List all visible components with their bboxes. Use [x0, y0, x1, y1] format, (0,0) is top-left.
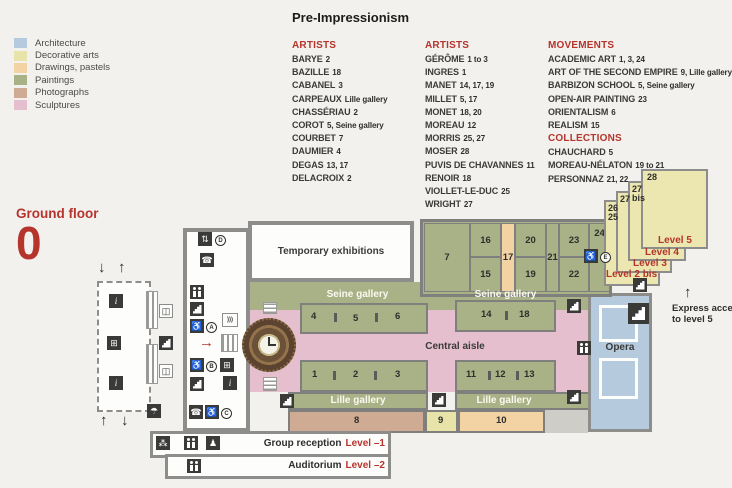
legend-item: Paintings: [14, 74, 110, 86]
toilets-icon: [187, 459, 201, 473]
list-entry: COURBET7: [292, 132, 387, 145]
up-arrow-icon: ↑: [684, 284, 692, 301]
list-entry: WRIGHT27: [425, 198, 535, 211]
room-27: 27: [620, 195, 630, 204]
opera-label: Opera: [596, 342, 644, 353]
room-17: 17: [501, 223, 515, 292]
movements-column: MOVEMENTS ACADEMIC ART1, 3, 24ART OF THE…: [548, 40, 732, 186]
stairs-icon: [567, 299, 581, 313]
staircase-hatch: [146, 291, 158, 329]
wall-stub: [333, 371, 336, 380]
artists-heading: ARTISTS: [292, 40, 387, 51]
letter-d-badge: D: [215, 235, 226, 246]
artists-column-1: ARTISTS BARYE2BAZILLE18CABANEL3CARPEAUXL…: [292, 40, 387, 185]
stairs-icon: [280, 394, 294, 408]
list-entry: DELACROIX2: [292, 172, 387, 185]
room-6: 6: [395, 311, 400, 322]
wall-stub: [334, 313, 337, 322]
bookshop-icon: ◫: [159, 304, 173, 318]
artists-heading: ARTISTS: [425, 40, 535, 51]
room-19: 19: [515, 257, 546, 292]
toilets-icon: [577, 341, 591, 355]
list-entry: MOSER28: [425, 145, 535, 158]
list-entry: GÉRÔME1 to 3: [425, 53, 535, 66]
legend-label: Drawings, pastels: [35, 62, 110, 73]
legend-item: Architecture: [14, 37, 110, 49]
room-15: 15: [470, 257, 501, 292]
museum-floorplan-page: Architecture Decorative arts Drawings, p…: [0, 0, 732, 488]
bookshop-icon: ◫: [159, 364, 173, 378]
group-icon: ⁂: [156, 436, 170, 450]
room-14: 14: [481, 309, 492, 320]
toilets-icon: [190, 285, 204, 299]
central-aisle-label: Central aisle: [410, 341, 500, 352]
stairs-icon: [190, 377, 204, 391]
stairs-icon: [567, 390, 581, 404]
legend-swatch: [14, 100, 27, 110]
service-area: [545, 406, 588, 433]
info-icon: i: [223, 376, 237, 390]
room-1: 1: [312, 369, 317, 380]
audioguide-icon: ))): [222, 313, 238, 327]
tickets-icon: ⊞: [107, 336, 121, 350]
room-16: 16: [470, 223, 501, 257]
list-entry: BAZILLE18: [292, 66, 387, 79]
phone-icon: ☎: [189, 405, 203, 419]
list-entry: CARPEAUXLille gallery: [292, 93, 387, 106]
legend-swatch: [14, 51, 27, 61]
list-entry: COROT5, Seine gallery: [292, 119, 387, 132]
room-25: 25: [608, 213, 618, 222]
wall-stub: [374, 371, 377, 380]
room-18: 18: [519, 309, 530, 320]
staircase-hatch: [263, 377, 277, 391]
staircase-hatch: [221, 334, 238, 352]
room-11: 11: [466, 369, 476, 380]
legend-label: Decorative arts: [35, 50, 99, 61]
page-title: Pre-Impressionism: [292, 10, 409, 25]
up-arrow-icon: ↑: [118, 259, 126, 276]
escalator-icon: [628, 303, 649, 324]
rooms-4-6-block: [300, 303, 428, 334]
legend-item: Decorative arts: [14, 49, 110, 61]
legend-label: Sculptures: [35, 100, 80, 111]
room-8: 8: [354, 415, 359, 426]
info-icon: i: [109, 294, 123, 308]
express-access-label: Express access: [672, 303, 732, 314]
level-2bis-label: Level 2 bis: [606, 269, 657, 280]
legend-item: Photographs: [14, 87, 110, 99]
list-entry: INGRES1: [425, 66, 535, 79]
legend-swatch: [14, 38, 27, 48]
wheelchair-icon: ♿: [190, 319, 204, 333]
rooms-1-3-block: [300, 360, 428, 392]
list-entry: MANET14, 17, 19: [425, 79, 535, 92]
elevator-icon: ⇅: [198, 232, 212, 246]
letter-c-badge: C: [221, 408, 232, 419]
temporary-exhibitions-label: Temporary exhibitions: [278, 246, 385, 257]
legend-swatch: [14, 75, 27, 85]
wall-stub: [516, 371, 519, 380]
artists-list-2: GÉRÔME1 to 3INGRES1MANET14, 17, 19MILLET…: [425, 53, 535, 211]
legend-label: Photographs: [35, 87, 89, 98]
list-entry: ORIENTALISM6: [548, 106, 732, 119]
group-reception-label: Group receptionLevel –1: [200, 438, 385, 449]
room-3: 3: [395, 369, 400, 380]
seine-gallery-label-left: Seine gallery: [320, 289, 395, 300]
legend-item: Sculptures: [14, 99, 110, 111]
room-27bis: 27 bis: [632, 185, 646, 203]
stairs-icon: [432, 393, 446, 407]
up-arrow-icon: ↑: [100, 412, 108, 429]
list-entry: MILLET5, 17: [425, 93, 535, 106]
group-reception-text: Group reception: [264, 438, 342, 449]
movements-list: ACADEMIC ART1, 3, 24ART OF THE SECOND EM…: [548, 53, 732, 132]
stairs-icon: [633, 278, 647, 292]
list-entry: MONET18, 20: [425, 106, 535, 119]
legend-item: Drawings, pastels: [14, 62, 110, 74]
legend-swatch: [14, 88, 27, 98]
list-entry: VIOLLET-LE-DUC25: [425, 185, 535, 198]
movements-heading: MOVEMENTS: [548, 40, 732, 51]
letter-e-badge: E: [600, 252, 611, 263]
floor-number: 0: [16, 220, 42, 266]
room-21: 21: [546, 223, 559, 292]
level-3-label: Level 3: [633, 258, 667, 269]
clock-medallion: [242, 318, 296, 372]
list-entry: PUVIS DE CHAVANNES11: [425, 159, 535, 172]
seine-gallery-label-right: Seine gallery: [468, 289, 543, 300]
list-entry: CHAUCHARD5: [548, 146, 732, 159]
entrance-wing: [97, 281, 151, 412]
entrance-direction-arrow: →: [199, 334, 214, 351]
list-entry: ACADEMIC ART1, 3, 24: [548, 53, 732, 66]
collections-heading: COLLECTIONS: [548, 133, 732, 144]
room-13: 13: [524, 369, 535, 380]
room-2: 2: [353, 369, 358, 380]
wheelchair-icon: ♿: [584, 249, 598, 263]
lille-gallery-label-left: Lille gallery: [322, 395, 394, 406]
room-28: 28: [647, 173, 657, 182]
list-entry: OPEN-AIR PAINTING23: [548, 93, 732, 106]
wall-stub: [505, 311, 508, 320]
room-12: 12: [495, 369, 506, 380]
stairs-icon: [190, 302, 204, 316]
level-4-label: Level 4: [645, 247, 679, 258]
room-5: 5: [353, 313, 358, 324]
lille-gallery-label-right: Lille gallery: [468, 395, 540, 406]
list-entry: ART OF THE SECOND EMPIRE9, Lille gallery: [548, 66, 732, 79]
list-entry: REALISM15: [548, 119, 732, 132]
auditorium-level: Level –2: [346, 460, 385, 471]
legend-swatch: [14, 63, 27, 73]
wheelchair-icon: ♿: [205, 405, 219, 419]
room-10: 10: [496, 415, 507, 426]
list-entry: MOREAU12: [425, 119, 535, 132]
toilets-icon: [184, 436, 198, 450]
staircase-hatch: [263, 302, 277, 314]
baby-care-icon: ♟: [206, 436, 220, 450]
legend: Architecture Decorative arts Drawings, p…: [14, 37, 110, 111]
artists-column-2: ARTISTS GÉRÔME1 to 3INGRES1MANET14, 17, …: [425, 40, 535, 211]
room-20: 20: [515, 223, 546, 257]
list-entry: DEGAS13, 17: [292, 159, 387, 172]
letter-a-badge: A: [206, 322, 217, 333]
list-entry: MORRIS25, 27: [425, 132, 535, 145]
list-entry: CABANEL3: [292, 79, 387, 92]
down-arrow-icon: ↓: [121, 412, 129, 429]
legend-label: Architecture: [35, 38, 86, 49]
auditorium-text: Auditorium: [288, 460, 341, 471]
opera-room-outline: [599, 358, 638, 399]
list-entry: BARYE2: [292, 53, 387, 66]
level-5-label: Level 5: [658, 235, 692, 246]
group-reception-level: Level –1: [346, 438, 385, 449]
info-icon: i: [109, 376, 123, 390]
list-entry: RENOIR18: [425, 172, 535, 185]
elevator-grid-icon: ⊞: [220, 358, 234, 372]
temporary-exhibitions-room: Temporary exhibitions: [248, 221, 414, 282]
legend-label: Paintings: [35, 75, 74, 86]
cloakroom-icon: ☂: [147, 404, 161, 418]
express-access-label-2: to level 5: [672, 314, 713, 325]
stairs-icon: [159, 336, 173, 350]
wall-stub: [375, 313, 378, 322]
down-arrow-icon: ↓: [98, 259, 106, 276]
wall-stub: [488, 371, 491, 380]
letter-b-badge: B: [206, 361, 217, 372]
staircase-hatch: [146, 344, 158, 384]
wheelchair-icon: ♿: [190, 358, 204, 372]
list-entry: BARBIZON SCHOOL5, Seine gallery: [548, 79, 732, 92]
room-4: 4: [311, 311, 316, 322]
artists-list-1: BARYE2BAZILLE18CABANEL3CARPEAUXLille gal…: [292, 53, 387, 185]
list-entry: DAUMIER4: [292, 145, 387, 158]
list-entry: CHASSÉRIAU2: [292, 106, 387, 119]
auditorium-label: AuditoriumLevel –2: [210, 460, 385, 471]
phone-icon: ☎: [200, 253, 214, 267]
room-7: 7: [424, 223, 470, 292]
room-9: 9: [438, 415, 443, 426]
